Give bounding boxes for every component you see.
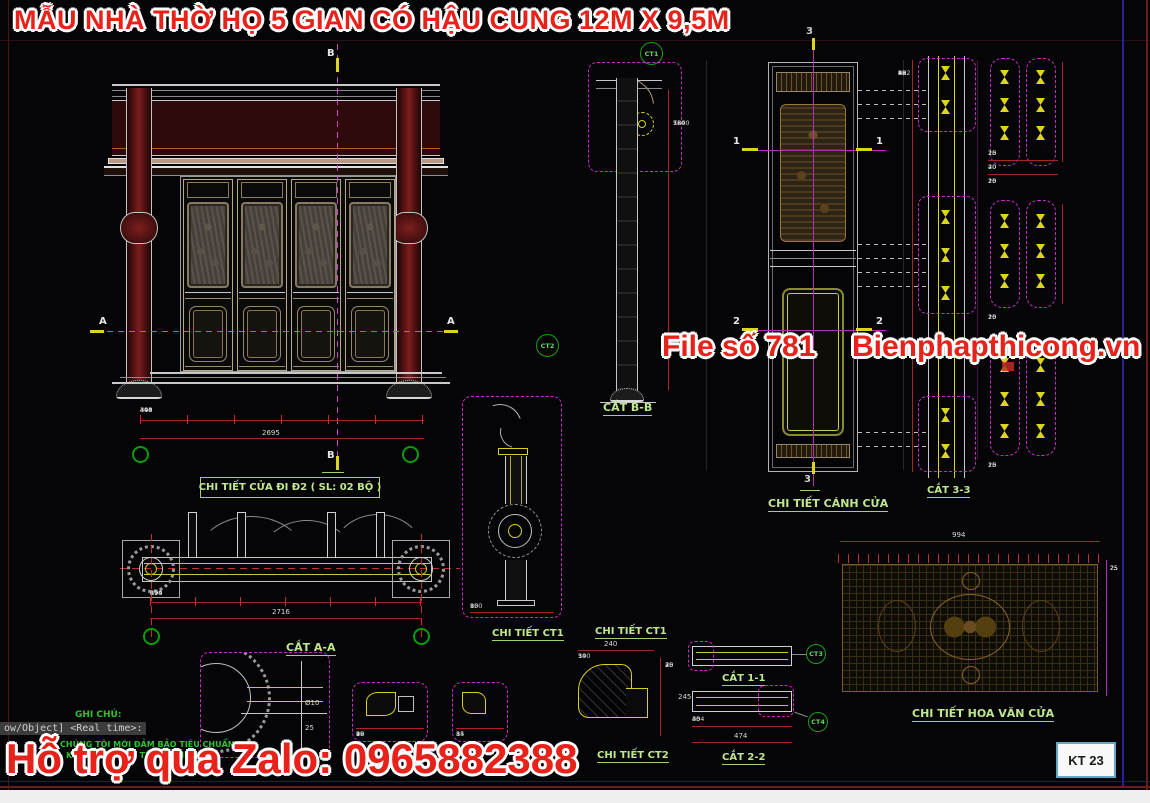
decor-line	[758, 685, 794, 717]
frame-line-maroon	[1146, 0, 1148, 803]
decor-line: 245	[678, 694, 691, 701]
decor-line	[692, 726, 792, 727]
marker-1-left: 1	[733, 136, 740, 147]
decor-line	[1062, 62, 1063, 162]
door-panel-group	[180, 176, 396, 372]
decor-line	[349, 202, 391, 288]
beam-molding-1	[108, 158, 444, 164]
decor-line	[912, 60, 913, 472]
decor-line	[706, 60, 707, 470]
dim-value: 340	[140, 407, 152, 414]
plan-bar	[142, 557, 432, 582]
door-leaf-4	[345, 179, 395, 371]
decor-line	[988, 160, 1058, 161]
marker-3-bottom: 3	[804, 474, 811, 485]
decor-line	[187, 182, 229, 198]
dim-value: 40	[898, 70, 906, 77]
axis-bubble	[132, 446, 149, 463]
cut-bb-label: CẮT B-B	[603, 402, 652, 416]
cut-22-label: CẮT 2-2	[722, 752, 765, 765]
decor-line	[293, 298, 339, 299]
decor-line	[800, 490, 820, 491]
ct1b-section	[578, 664, 632, 718]
dim-value: 760	[673, 120, 685, 127]
decor-line	[239, 298, 285, 299]
axis-bubble	[143, 628, 160, 645]
decor-line	[185, 298, 231, 299]
decor-line: 474	[734, 733, 747, 740]
decor-line	[347, 298, 393, 299]
decor-line	[988, 174, 1058, 175]
marker-b-top: B	[327, 48, 335, 59]
decor-line	[962, 572, 980, 590]
watermark-zalo: Hỗ trợ qua Zalo: 0965882388	[6, 735, 577, 783]
marker-3-top: 3	[806, 26, 813, 37]
decor-line: 994	[952, 532, 965, 539]
decor-line	[356, 728, 424, 729]
column-capital-left	[120, 212, 158, 244]
plan-dim-total: 2716	[272, 609, 290, 616]
door-leaf-1	[183, 179, 233, 371]
decor-line	[578, 650, 654, 651]
decor-line	[239, 292, 285, 293]
dim-value: 80	[470, 603, 478, 610]
decor-line	[347, 292, 393, 293]
decor-line	[510, 456, 511, 504]
decor-line	[813, 46, 814, 486]
decor-line	[351, 306, 389, 362]
axis-bubble	[413, 628, 430, 645]
decor-line	[185, 366, 231, 367]
ct2-label: CHI TIẾT CT2	[597, 750, 669, 763]
pattern-label: CHI TIẾT HOA VĂN CỬA	[912, 708, 1054, 722]
decor-line	[838, 554, 1100, 563]
decor-line	[90, 330, 104, 333]
decor-line	[638, 120, 646, 128]
dia-dim: Ø10	[305, 699, 319, 707]
decor-line: 25	[305, 725, 314, 732]
frame-line-left	[8, 0, 9, 803]
decor-line	[505, 560, 527, 600]
ct1-plate	[498, 448, 528, 455]
decor-line	[293, 292, 339, 293]
decor-line	[660, 658, 661, 736]
decor-line	[812, 462, 815, 474]
post-foot	[610, 388, 644, 402]
decor-line	[239, 366, 285, 367]
door-leaf-label: CHI TIẾT CÁNH CỬA	[768, 498, 888, 512]
door-pattern-panel: 994 252525252525252525252525252525252525…	[0, 0, 1, 1]
decor-line	[444, 330, 458, 333]
decor-line	[144, 563, 430, 564]
cut-33-label: CẮT 3-3	[927, 485, 970, 498]
decor-line	[151, 534, 152, 638]
marker-1-right: 1	[876, 136, 883, 147]
ct4-bubble: CT4	[808, 712, 828, 732]
plan-leaf	[376, 512, 385, 558]
decor-line	[144, 574, 430, 575]
dim-value: 20	[988, 164, 996, 171]
decor-line	[140, 438, 424, 439]
section-line-a	[96, 331, 458, 332]
dim-value: 10	[988, 462, 996, 469]
decor-line	[112, 90, 440, 91]
decor-line	[856, 148, 872, 151]
pattern-medallion	[930, 594, 1010, 660]
decor-line	[140, 415, 425, 424]
ct1b-step	[626, 688, 648, 718]
decor-line	[688, 641, 714, 671]
sheet-number: KT 23	[1068, 753, 1103, 768]
decor-line	[322, 472, 344, 473]
decor-line	[112, 382, 450, 384]
decor-line	[247, 687, 323, 688]
cad-sheet: MẪU NHÀ THỜ HỌ 5 GIAN CÓ HẬU CUNG 12M X …	[0, 0, 1150, 803]
decor-line	[742, 148, 758, 151]
notes-heading: GHI CHÚ:	[75, 710, 121, 722]
plan-leaf	[327, 512, 336, 558]
decor-line	[150, 372, 442, 374]
decor-line	[1062, 204, 1063, 304]
ct2-bubble: CT2	[536, 334, 559, 357]
decor-line	[840, 541, 1100, 542]
ct1-a-label: CHI TIẾT CT1	[492, 628, 564, 641]
decor-line: 240	[604, 641, 617, 648]
plan-leaf	[188, 512, 197, 558]
decor-line	[903, 60, 904, 470]
door-leaf-3	[291, 179, 341, 371]
marker-2-left: 2	[733, 316, 740, 327]
frame-line-blue	[1122, 0, 1124, 788]
dim-value: 40	[665, 662, 673, 669]
decor-line	[470, 612, 554, 613]
decor-line	[977, 60, 978, 460]
decor-line	[112, 96, 440, 97]
decor-line	[336, 456, 339, 470]
facade-label-box: CHI TIẾT CỬA ĐI Đ2 ( SL: 02 BỘ )	[200, 477, 380, 498]
marker-a-right: A	[447, 316, 455, 327]
decor-line	[349, 182, 391, 198]
decor-line	[293, 366, 339, 367]
dim-value: 10	[988, 150, 996, 157]
marker-a-left: A	[99, 316, 107, 327]
decor-line	[189, 306, 227, 362]
decor-line	[366, 692, 396, 716]
decor-line	[456, 728, 504, 729]
plan-leaf	[237, 512, 246, 558]
decor-line	[497, 600, 535, 606]
decor-line	[812, 38, 815, 50]
decor-line	[120, 377, 446, 378]
decor-line	[962, 666, 980, 684]
decor-line	[243, 306, 281, 362]
decor-line	[241, 182, 283, 198]
decor-line	[112, 148, 440, 149]
cut-11-label: CẮT 1-1	[722, 673, 765, 686]
decor-line	[241, 202, 283, 288]
decor-line	[295, 182, 337, 198]
watermark-file-no: File số 781	[662, 330, 815, 364]
dim-value: 10	[988, 178, 996, 185]
decor-line	[521, 456, 522, 504]
decor-line	[918, 396, 976, 472]
decor-line	[187, 202, 229, 288]
ct3-bubble: CT3	[806, 644, 826, 664]
decor-line	[112, 84, 440, 86]
watermark-website: Bienphapthicong.vn	[852, 330, 1140, 364]
dim-value: 10	[988, 314, 996, 321]
decor-line	[794, 712, 807, 718]
decor-line	[505, 456, 527, 504]
decor-line	[295, 202, 337, 288]
decor-line	[792, 654, 806, 655]
door-leaf-2	[237, 179, 287, 371]
decor-line	[347, 366, 393, 367]
decor-line	[508, 524, 522, 538]
decor-line	[150, 597, 423, 606]
marker-b-bottom: B	[327, 450, 335, 461]
frame-line	[0, 40, 1150, 41]
decor-line	[878, 600, 916, 652]
facade-dim-total: 2695	[262, 430, 280, 437]
decor-line	[297, 306, 335, 362]
decor-line	[1106, 560, 1107, 696]
facade-label: CHI TIẾT CỬA ĐI Đ2 ( SL: 02 BỘ )	[199, 482, 382, 493]
decor-line	[336, 58, 339, 72]
centerline-b	[337, 44, 338, 470]
decor-line	[421, 534, 422, 638]
dim-value: 50	[578, 653, 586, 660]
decor-line	[1022, 600, 1060, 652]
decor-line	[462, 692, 486, 714]
axis-bubble	[402, 446, 419, 463]
page-title: MẪU NHÀ THỜ HỌ 5 GIAN CÓ HẬU CUNG 12M X …	[14, 5, 730, 36]
dim-value: 25	[1110, 566, 1118, 572]
bottom-white-strip	[0, 790, 1150, 803]
post-section	[616, 78, 638, 396]
dim-value: 30	[692, 716, 700, 723]
command-line-overlay: ow/Object] <Real time>:	[0, 722, 146, 735]
decor-line	[398, 696, 414, 712]
decor-line	[692, 742, 792, 743]
frame-line-maroon-bottom	[0, 786, 1150, 788]
dim-value: 370	[150, 590, 162, 597]
sheet-number-box: KT 23	[1056, 742, 1116, 778]
decor-line	[150, 618, 422, 619]
marker-2-right: 2	[876, 316, 883, 327]
ct1-b-label: CHI TIẾT CT1	[595, 626, 667, 639]
decor-line	[185, 292, 231, 293]
